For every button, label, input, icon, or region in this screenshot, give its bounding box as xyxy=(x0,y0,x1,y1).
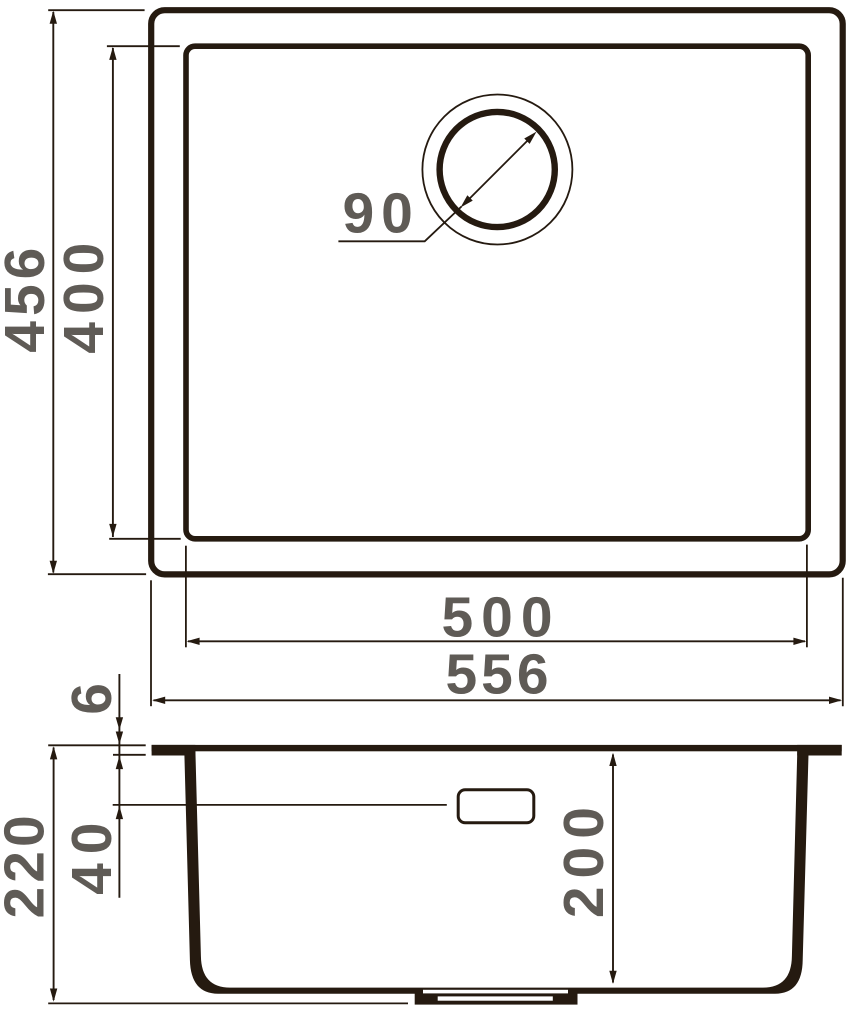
svg-text:400: 400 xyxy=(52,235,116,354)
svg-text:6: 6 xyxy=(60,678,124,715)
svg-text:200: 200 xyxy=(552,799,616,918)
svg-text:500: 500 xyxy=(441,586,560,650)
svg-text:220: 220 xyxy=(0,811,56,918)
svg-text:40: 40 xyxy=(60,813,124,894)
svg-text:556: 556 xyxy=(445,643,552,707)
svg-text:456: 456 xyxy=(0,243,57,353)
svg-text:90: 90 xyxy=(342,182,419,246)
